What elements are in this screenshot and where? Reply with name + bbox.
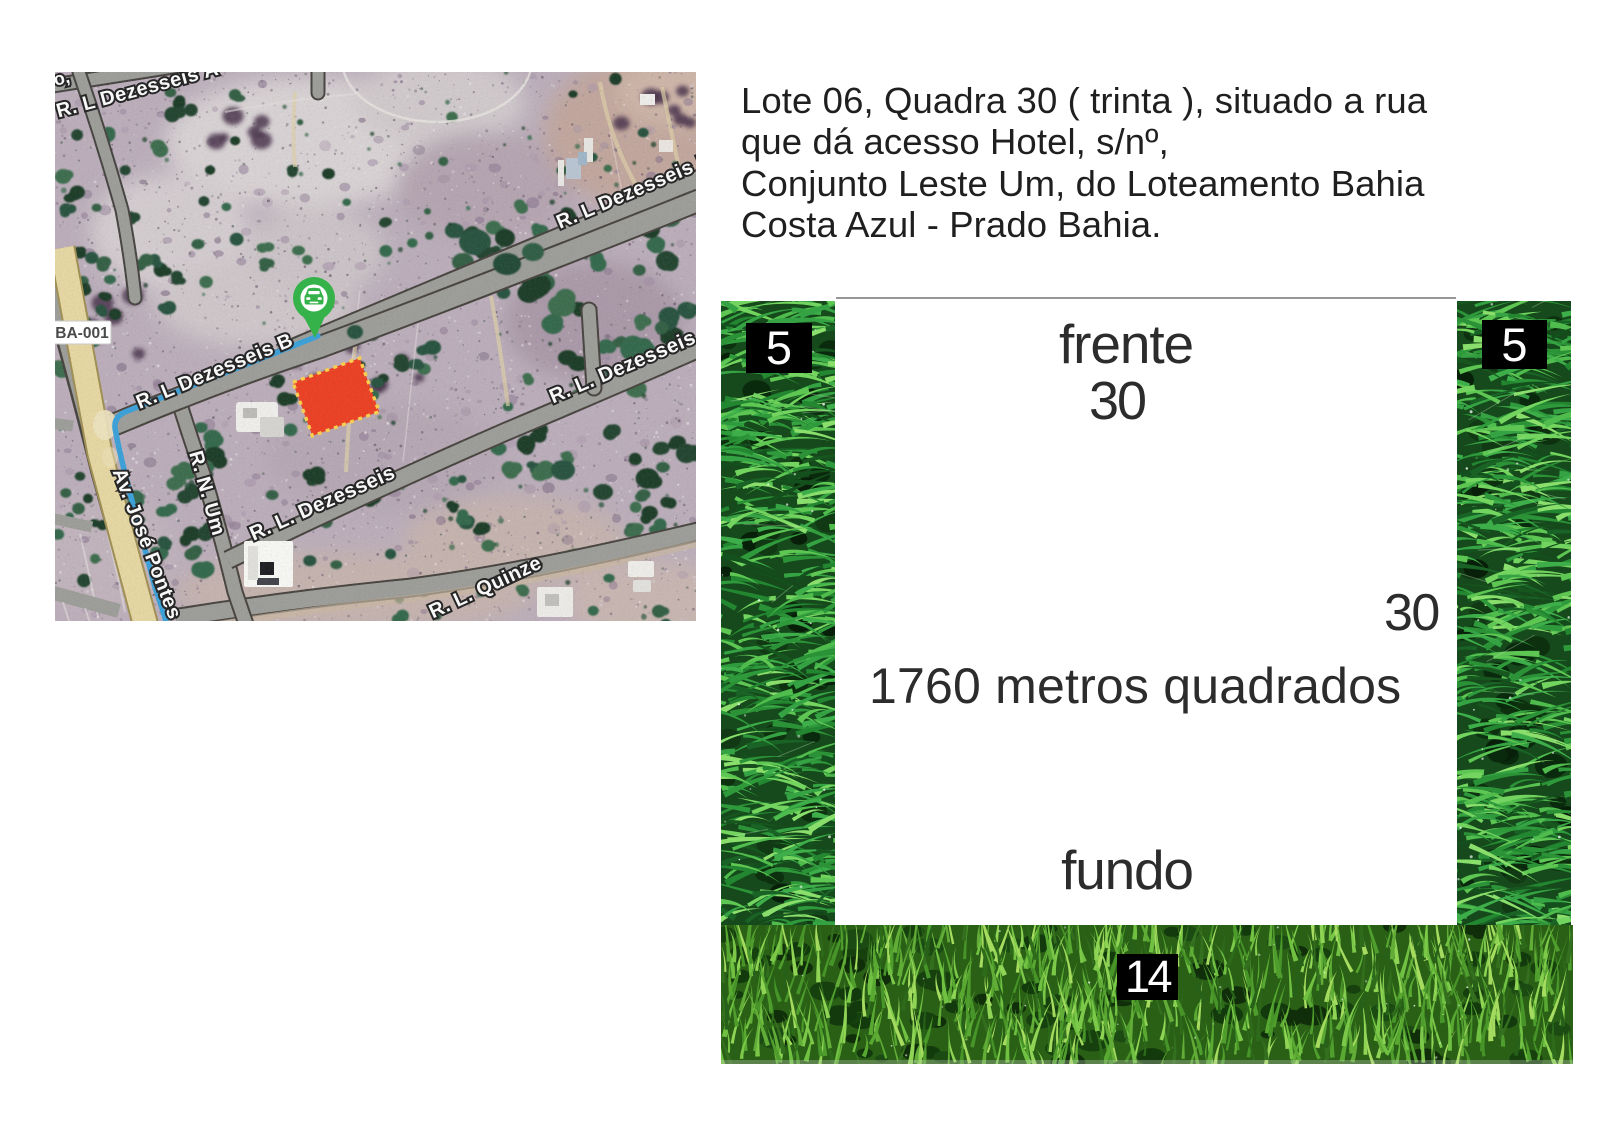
svg-text:BA-001: BA-001 bbox=[55, 325, 109, 342]
